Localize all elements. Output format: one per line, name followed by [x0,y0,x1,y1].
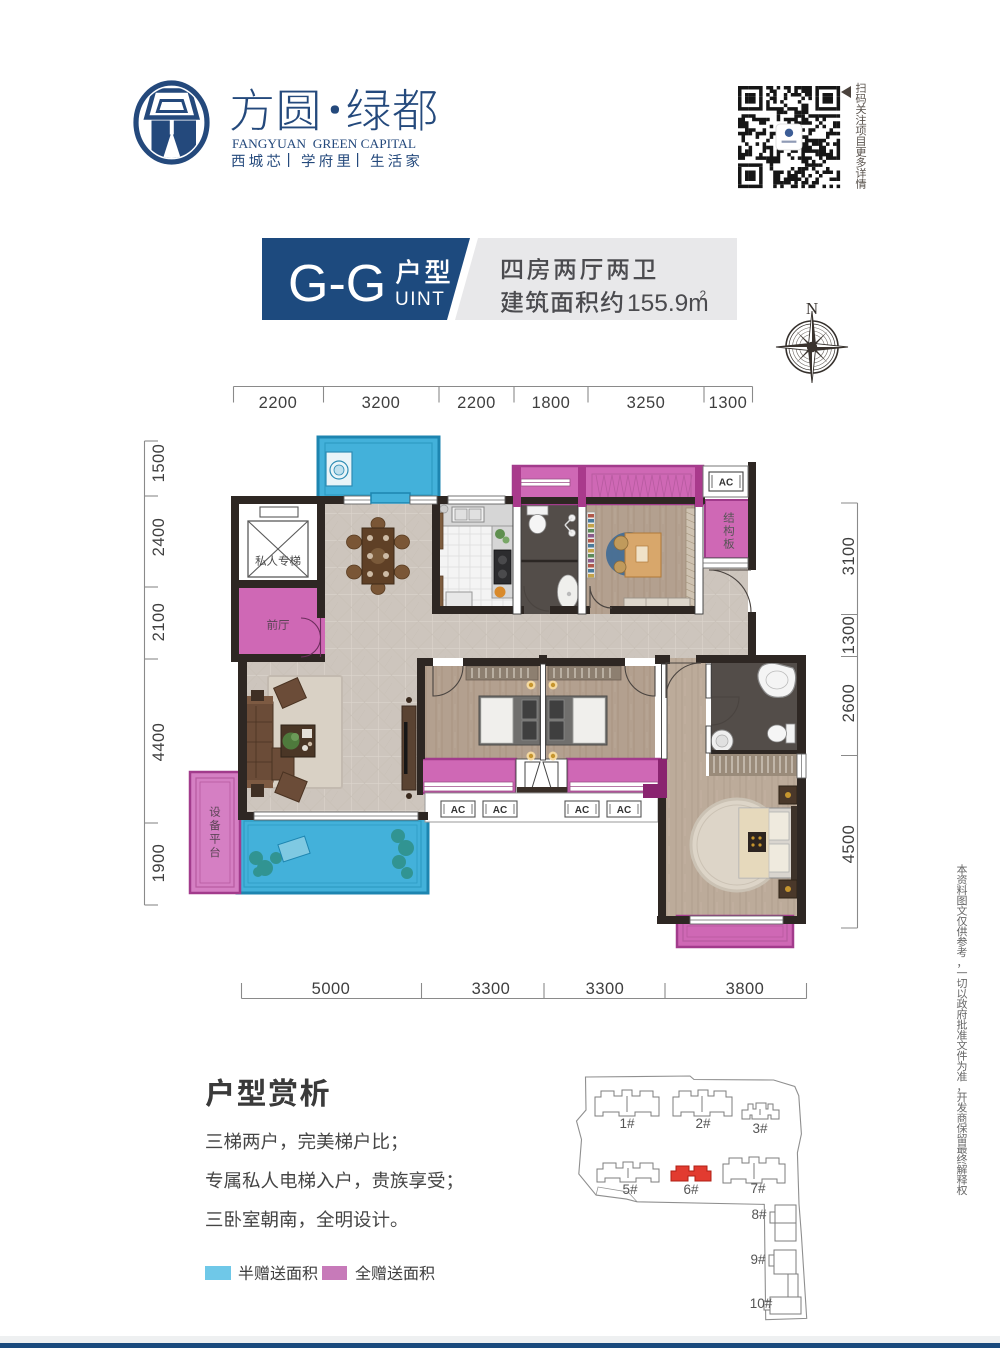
svg-text:1500: 1500 [150,444,168,483]
svg-text:5#: 5# [622,1182,638,1197]
svg-text:G-G: G-G [288,255,386,313]
svg-text:2#: 2# [695,1116,711,1131]
svg-text:UINT: UINT [395,289,445,310]
svg-text:6#: 6# [683,1182,699,1197]
svg-text:10#: 10# [750,1296,773,1311]
svg-text:3300: 3300 [472,980,511,998]
svg-text:4500: 4500 [840,825,858,864]
svg-text:2600: 2600 [840,684,858,723]
svg-text:2: 2 [700,288,707,302]
svg-text:FANGYUAN GREEN CAPITAL: FANGYUAN GREEN CAPITAL [232,137,416,151]
svg-text:155.9m: 155.9m [627,290,709,317]
svg-text:2200: 2200 [259,394,298,412]
svg-text:AC: AC [493,805,507,816]
svg-text:2100: 2100 [150,603,168,642]
svg-text:1800: 1800 [532,394,571,412]
svg-text:1900: 1900 [150,844,168,883]
svg-text:AC: AC [575,805,589,816]
svg-text:3300: 3300 [586,980,625,998]
svg-text:AC: AC [617,805,631,816]
svg-text:AC: AC [451,805,465,816]
svg-text:3250: 3250 [627,394,666,412]
svg-text:3100: 3100 [840,537,858,576]
svg-text:5000: 5000 [312,980,351,998]
svg-text:9#: 9# [750,1252,766,1267]
svg-text:3800: 3800 [726,980,765,998]
svg-text:1#: 1# [619,1116,635,1131]
svg-text:1300: 1300 [709,394,748,412]
svg-text:7#: 7# [750,1181,766,1196]
svg-text:2200: 2200 [457,394,496,412]
svg-text:2400: 2400 [150,518,168,557]
svg-text:3#: 3# [752,1121,768,1136]
svg-text:AC: AC [719,478,733,489]
svg-text:1300: 1300 [840,616,858,655]
svg-text:8#: 8# [751,1207,767,1222]
svg-text:N: N [806,299,818,318]
svg-text:4400: 4400 [150,723,168,762]
svg-text:3200: 3200 [362,394,401,412]
